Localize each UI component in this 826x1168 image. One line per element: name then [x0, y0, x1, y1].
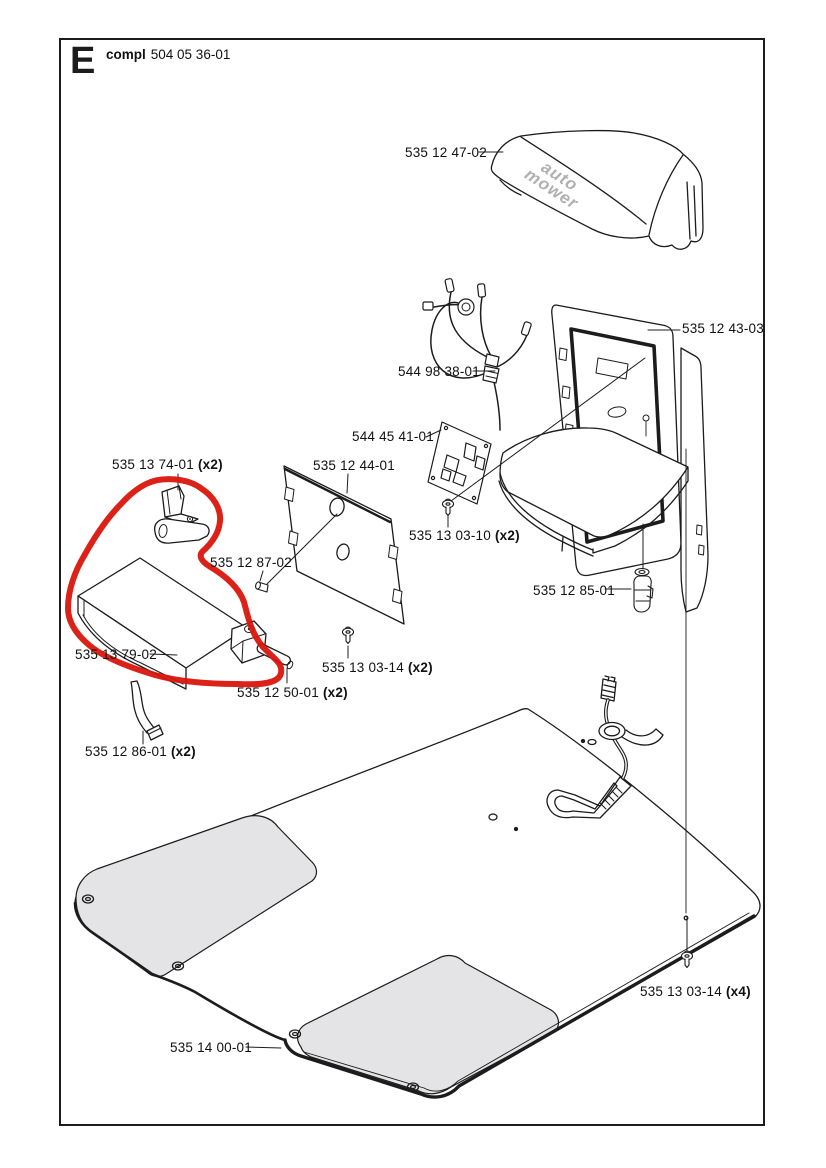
part-label-535-13-79-02: 535 13 79-02 — [75, 647, 161, 662]
part-label-535-12-87-02: 535 12 87-02 — [210, 555, 296, 570]
part-label-535-12-43-03: 535 12 43-03 — [682, 321, 768, 336]
screw-03-14-x4-icon — [682, 951, 693, 968]
screw-03-14-x2-icon — [343, 627, 354, 644]
part-label-535-13-03-10: 535 13 03-10(x2) — [409, 528, 520, 543]
plug-drawing — [634, 569, 653, 613]
strip-drawing — [131, 681, 163, 740]
part-label-535-12-50-01: 535 12 50-01(x2) — [237, 685, 348, 700]
handle-drawing — [155, 486, 209, 543]
wire-harness-drawing — [423, 278, 532, 430]
part-label-544-45-41-01: 544 45 41-01 — [352, 429, 438, 444]
body-frame-drawing — [499, 305, 708, 612]
part-label-544-98-38-01: 544 98 38-01 — [398, 364, 484, 379]
pin-87-drawing — [255, 581, 268, 592]
parts-diagram-page: E compl504 05 36-01 — [0, 0, 826, 1168]
base-plate-drawing — [75, 676, 760, 1097]
part-label-535-13-03-14-x4: 535 13 03-14(x4) — [640, 984, 751, 999]
part-label-535-13-74-01: 535 13 74-01(x2) — [112, 457, 223, 472]
part-label-535-14-00-01: 535 14 00-01 — [170, 1040, 256, 1055]
part-label-535-13-03-14-x2: 535 13 03-14(x2) — [322, 660, 433, 675]
top-cover-drawing: auto mower — [491, 131, 703, 250]
part-label-535-12-86-01: 535 12 86-01(x2) — [85, 744, 196, 759]
part-label-535-12-44-01: 535 12 44-01 — [313, 458, 399, 473]
part-label-535-12-85-01: 535 12 85-01 — [533, 583, 619, 598]
screw-03-10-icon — [443, 499, 454, 516]
rear-panel-drawing — [284, 466, 404, 624]
part-label-535-12-47-02: 535 12 47-02 — [405, 145, 491, 160]
